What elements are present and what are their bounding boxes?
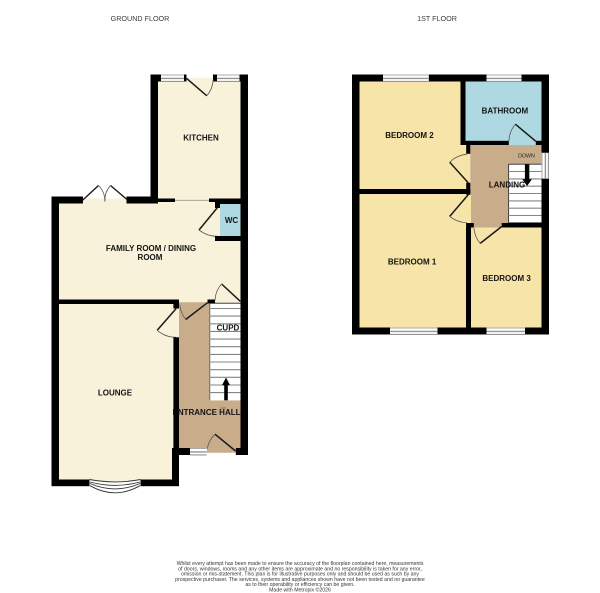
svg-text:GROUND FLOOR: GROUND FLOOR [111,14,170,23]
svg-text:WC: WC [225,216,239,225]
svg-text:CUPD: CUPD [217,323,240,332]
svg-text:DOWN: DOWN [518,153,535,159]
svg-text:ROOM: ROOM [138,253,163,262]
svg-text:BEDROOM 3: BEDROOM 3 [482,274,531,283]
svg-text:BATHROOM: BATHROOM [482,107,529,116]
svg-text:LOUNGE: LOUNGE [98,388,133,397]
svg-text:BEDROOM 1: BEDROOM 1 [388,258,437,267]
svg-text:ENTRANCE HALL: ENTRANCE HALL [173,408,241,417]
svg-text:FAMILY ROOM / DINING: FAMILY ROOM / DINING [106,244,196,253]
svg-text:Made with Metropix ©2026: Made with Metropix ©2026 [269,586,331,593]
svg-text:1ST FLOOR: 1ST FLOOR [417,14,457,23]
svg-text:BEDROOM 2: BEDROOM 2 [385,131,434,140]
svg-text:LANDING: LANDING [489,181,525,190]
svg-text:UP: UP [221,406,227,411]
svg-text:KITCHEN: KITCHEN [183,134,219,143]
